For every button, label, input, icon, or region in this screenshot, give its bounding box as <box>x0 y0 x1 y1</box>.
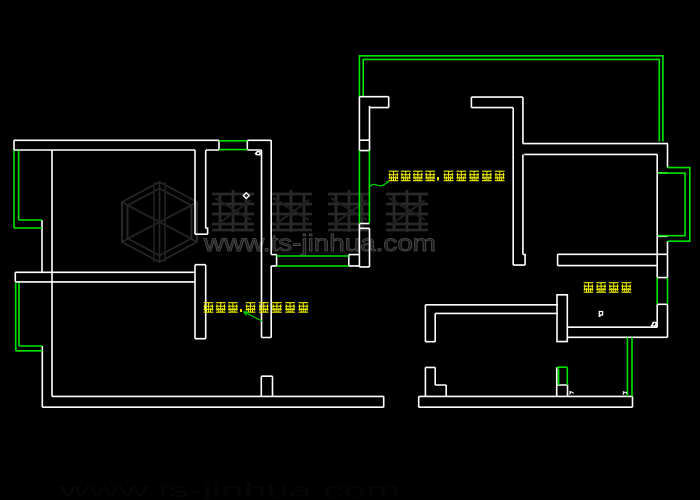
svg-text:www.ts-jinhua.com: www.ts-jinhua.com <box>203 230 436 256</box>
svg-text:www.ts-jinhua.com: www.ts-jinhua.com <box>58 480 400 500</box>
